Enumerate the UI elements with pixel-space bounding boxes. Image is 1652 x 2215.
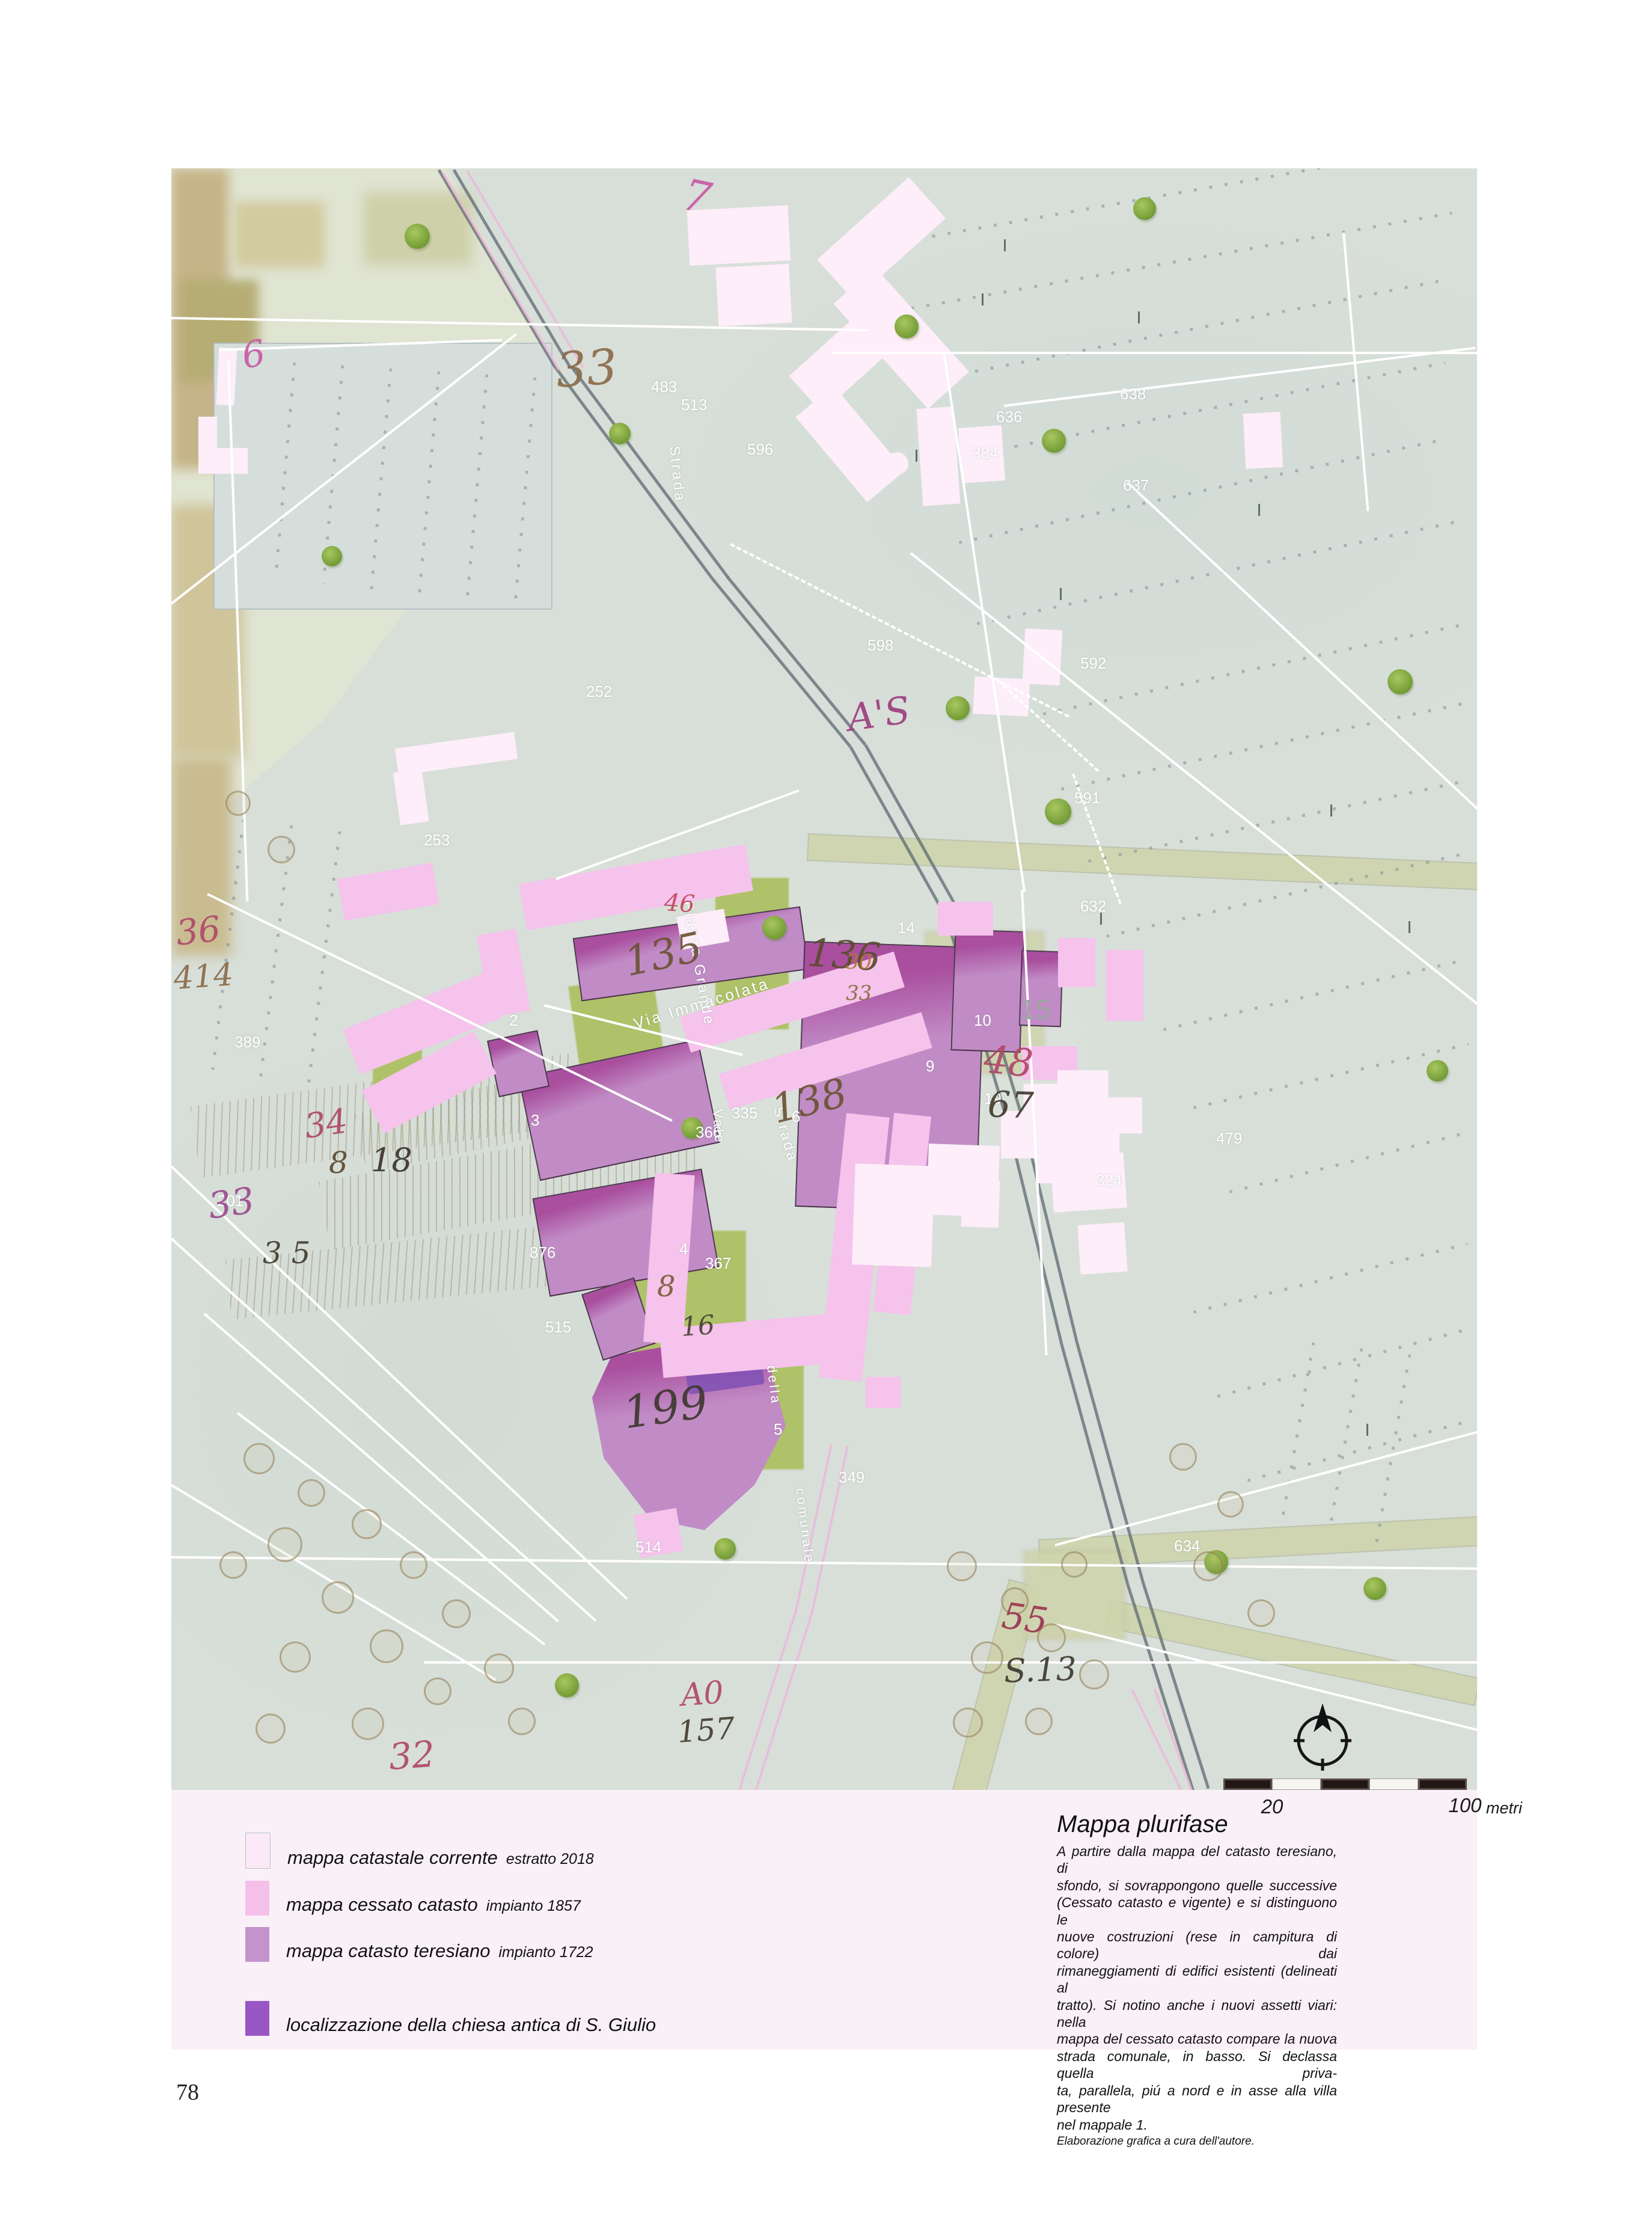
parcel-number-label: 634 (1174, 1537, 1200, 1555)
handwritten-parcel-number: 30 (846, 950, 872, 974)
handwritten-parcel-number: S.13 (1003, 1650, 1077, 1690)
handwritten-parcel-number: 34 (302, 1101, 350, 1146)
sketched-tree-icon (280, 1641, 311, 1673)
field-row-dots (1247, 1420, 1468, 1482)
handwritten-parcel-number: 48 (982, 1037, 1035, 1086)
parcel-number-label: 4 (679, 1240, 688, 1258)
legend-label: mappa cessato catasto (286, 1894, 478, 1916)
legend-swatch-1 (245, 1833, 271, 1869)
cadastral-boundary-line (833, 352, 1477, 354)
sketched-tree-icon (225, 791, 251, 816)
handwritten-parcel-number: 8 (657, 1270, 676, 1304)
legend-item: mappa catasto teresianoimpianto 1722 (245, 1927, 593, 1962)
sketched-tree-icon (370, 1629, 403, 1663)
caption-line: rimaneggiamenti di edifici esistenti (de… (1057, 1962, 1337, 1997)
road-edge-line (1141, 1579, 1210, 1789)
tree-icon (405, 224, 430, 249)
building-current-2018 (886, 452, 908, 475)
legend-item: mappa catastale correnteestratto 2018 (245, 1834, 594, 1869)
parcel-number-label: 598 (867, 636, 893, 655)
legend-sublabel: impianto 1857 (486, 1898, 581, 1915)
parcel-number-label: 513 (681, 396, 707, 414)
sketched-tree-icon (1247, 1599, 1275, 1627)
parchment-patch (213, 343, 552, 610)
small-tree-mark (1258, 504, 1260, 516)
sketched-tree-icon (1061, 1551, 1088, 1578)
handwritten-parcel-number: 157 (676, 1711, 736, 1750)
caption-line: ta, parallela, piú a nord e in asse alla… (1057, 2082, 1337, 2116)
legend-texts: mappa cessato catastoimpianto 1857 (286, 1894, 581, 1916)
sketched-tree-icon (400, 1551, 427, 1579)
parcel-number-label: 514 (635, 1538, 661, 1557)
field-row-dots (1328, 1348, 1363, 1532)
tree-icon (1133, 197, 1156, 220)
parcel-number-label: 349 (839, 1468, 864, 1487)
parcel-number-label: 479 (1216, 1129, 1242, 1148)
handwritten-parcel-number: 18 (371, 1141, 412, 1179)
caption-line: nel mappale 1. (1057, 2116, 1337, 2133)
building-cessato-1857 (1058, 938, 1095, 987)
field-row-dots (1060, 702, 1467, 791)
legend-texts: mappa catasto teresianoimpianto 1722 (286, 1940, 593, 1962)
small-tree-mark (982, 293, 984, 305)
building-teresiano-1722 (487, 1030, 549, 1097)
building-current-2018 (715, 264, 792, 326)
cadastral-boundary-line (424, 1661, 1477, 1664)
handwritten-parcel-number: 33 (846, 981, 872, 1005)
field-row-dots (1163, 958, 1468, 1031)
building-current-2018 (852, 1163, 935, 1267)
sketched-tree-icon (298, 1479, 325, 1507)
caption-body: A partire dalla mappa del catasto teresi… (1057, 1843, 1337, 2133)
sketched-tree-icon (352, 1509, 382, 1539)
cadastral-boundary-line (1342, 233, 1369, 512)
legend-swatch-2 (245, 1881, 269, 1916)
caption-title: Mappa plurifase (1057, 1811, 1337, 1838)
caption-line: A partire dalla mappa del catasto teresi… (1057, 1843, 1337, 1877)
figure-caption: Mappa plurifase A partire dalla mappa de… (1057, 1811, 1337, 2148)
legend-texts: mappa catastale correnteestratto 2018 (287, 1847, 594, 1869)
parcel-number-label-gray: 15 (1020, 993, 1051, 1026)
parcel-number-label: 367 (705, 1254, 731, 1273)
building-teresiano-1722 (950, 929, 1024, 1053)
parcel-number-label: 483 (651, 378, 677, 396)
sketched-tree-icon (508, 1708, 536, 1735)
small-tree-mark (1138, 311, 1140, 323)
compass-north-icon (1280, 1697, 1365, 1781)
road-surface (808, 835, 1477, 889)
sketched-tree-icon (484, 1653, 514, 1683)
parcel-number-label: 636 (996, 408, 1022, 426)
tree-icon (555, 1673, 579, 1697)
cadastral-dashed-line (997, 680, 1100, 773)
tree-icon (1045, 798, 1071, 825)
field-row-dots (917, 168, 1450, 240)
caption-line: (Cessato catasto e vigente) e si disting… (1057, 1894, 1337, 1928)
parcel-number-label: 592 (1080, 654, 1106, 673)
legend-label: localizzazione della chiesa antica di S.… (286, 2014, 656, 2036)
small-tree-mark (916, 450, 917, 462)
parcel-number-label: 335 (732, 1104, 757, 1123)
field-row-dots (1193, 1242, 1467, 1314)
document-page: 2522533892015155143493663673358764563463… (0, 0, 1652, 2215)
sketched-tree-icon (243, 1443, 275, 1474)
road-edge-line (864, 744, 963, 918)
sketched-tree-icon (442, 1599, 471, 1628)
parchment-patch (234, 201, 325, 268)
parcel-number-label: 2 (509, 1011, 518, 1030)
sketched-tree-icon (1193, 1551, 1223, 1581)
parcel-number-label: 9 (926, 1057, 934, 1076)
field-row-dots (1088, 779, 1470, 863)
tree-icon (1387, 669, 1413, 694)
parcel-number-label: 637 (1123, 476, 1149, 495)
handwritten-parcel-number: 8 (329, 1145, 348, 1180)
tree-icon (1042, 429, 1066, 453)
building-current-2018 (395, 732, 518, 775)
parcel-number-label: 596 (747, 440, 773, 459)
parcel-number-label: 253 (424, 831, 450, 850)
scale-bar-segment (1223, 1778, 1272, 1790)
field-row-dots (958, 437, 1447, 544)
building-current-2018 (796, 385, 905, 502)
sketched-tree-icon (971, 1641, 1003, 1674)
tree-icon (714, 1538, 736, 1560)
sketched-tree-icon (1169, 1443, 1197, 1471)
road-edge-line (849, 746, 948, 919)
legend-label: mappa catastale corrente (287, 1847, 498, 1869)
field-row-dots (1375, 1354, 1411, 1544)
cadastral-boundary-line (1004, 347, 1476, 407)
sketched-tree-icon (424, 1677, 451, 1705)
street-name-label: Vale (709, 1109, 727, 1145)
tree-icon (322, 546, 342, 566)
building-cessato-1857 (866, 1377, 901, 1408)
handwritten-parcel-number: 16 (680, 1310, 715, 1343)
parcel-number-label: 591 (1074, 789, 1100, 807)
building-current-2018 (961, 1180, 1000, 1228)
small-tree-mark (1366, 1424, 1368, 1436)
caption-credit: Elaborazione grafica a cura dell'autore. (1057, 2135, 1337, 2148)
legend-sublabel: estratto 2018 (506, 1851, 594, 1868)
scale-unit-label: metri (1486, 1799, 1522, 1818)
scale-bar-segment (1321, 1778, 1369, 1790)
parcel-number-label: 252 (586, 682, 612, 701)
legend-label: mappa catasto teresiano (286, 1940, 491, 1962)
small-tree-mark (1409, 921, 1410, 933)
parcel-number-label: 876 (530, 1243, 555, 1262)
parcel-number-label: 10 (974, 1011, 991, 1030)
cessato-road-line (738, 1609, 798, 1790)
parcel-number-label: 638 (1120, 385, 1146, 403)
parcel-number-label: 5 (774, 1420, 782, 1439)
handwritten-parcel-number: 32 (388, 1733, 436, 1778)
parcel-number-label: 515 (545, 1318, 571, 1337)
small-tree-mark (1060, 588, 1062, 600)
building-cessato-1857 (337, 863, 439, 921)
page-number: 78 (176, 2079, 199, 2106)
legend-item: mappa cessato catastoimpianto 1857 (245, 1881, 581, 1916)
caption-line: mappa del cessato catasto compare la nuo… (1057, 2030, 1337, 2047)
sketched-tree-icon (255, 1714, 286, 1744)
sketched-tree-icon (268, 1527, 302, 1562)
field-row-dots (1229, 1130, 1472, 1193)
handwritten-parcel-number: A0 (680, 1674, 725, 1714)
field-row-dots (259, 825, 293, 1082)
sketched-tree-icon (1025, 1708, 1053, 1735)
sketched-tree-icon (953, 1708, 983, 1738)
building-current-2018 (1077, 1222, 1128, 1275)
tree-icon (895, 314, 919, 339)
tree-icon (1427, 1060, 1448, 1082)
sketched-tree-icon (947, 1551, 977, 1581)
sketched-tree-icon (1217, 1491, 1244, 1518)
sketched-tree-icon (322, 1581, 354, 1614)
cessato-road-line (754, 1610, 814, 1790)
tree-icon (609, 423, 631, 444)
handwritten-parcel-number: 414 (173, 957, 234, 997)
handwritten-parcel-number: 33 (206, 1180, 257, 1228)
field-row-dots (1217, 1328, 1467, 1398)
handwritten-parcel-number: 36 (174, 908, 222, 953)
field-row-dots (306, 831, 341, 1094)
parcel-number-label: 632 (1080, 897, 1106, 916)
caption-line: sfondo, si sovrappongono quelle successi… (1057, 1877, 1337, 1894)
building-cessato-1857 (938, 902, 993, 936)
tree-icon (762, 916, 786, 940)
legend-texts: localizzazione della chiesa antica di S.… (286, 2014, 656, 2036)
scale-bar-segment (1369, 1778, 1418, 1790)
scale-bar-segment (1272, 1778, 1321, 1790)
sketched-tree-icon (268, 836, 295, 863)
road-edge-line (711, 578, 852, 748)
small-tree-mark (1330, 804, 1332, 816)
tree-icon (946, 696, 970, 720)
legend-sublabel: impianto 1722 (499, 1944, 593, 1961)
map-scale-bar (1223, 1778, 1467, 1790)
field-row-dots (1280, 1342, 1315, 1520)
building-current-2018 (216, 348, 237, 405)
handwritten-parcel-number: A'S (845, 688, 913, 740)
building-cessato-1857 (1106, 950, 1143, 1021)
building-current-2018 (1243, 412, 1283, 469)
handwritten-parcel-number: 46 (663, 889, 696, 918)
legend-swatch-3 (245, 1927, 269, 1962)
scale-bar-segment (1418, 1778, 1467, 1790)
handwritten-parcel-number: 55 (999, 1595, 1050, 1643)
handwritten-parcel-number: 33 (554, 339, 619, 399)
building-current-2018 (393, 769, 429, 826)
legend-swatch-4 (245, 2001, 269, 2036)
sketched-tree-icon (219, 1551, 247, 1579)
parcel-number-label: 384 (972, 444, 998, 462)
tree-icon (1363, 1577, 1386, 1600)
caption-line: tratto). Si notino anche i nuovi assetti… (1057, 1997, 1337, 2031)
scale-label-100: 100 (1448, 1794, 1481, 1817)
caption-line: nuove costruzioni (rese in campitura di … (1057, 1928, 1337, 1962)
handwritten-parcel-number: 67 (987, 1083, 1035, 1127)
parcel-number-label: 324 (1096, 1171, 1122, 1190)
caption-line: strada comunale, in basso. Si declassa q… (1057, 2048, 1337, 2082)
parcel-number-label: 389 (234, 1033, 260, 1052)
parcel-number-label: 3 (531, 1111, 539, 1130)
historic-cadastral-map: 2522533892015155143493663673358764563463… (171, 168, 1477, 1790)
field-row-dots (976, 518, 1465, 625)
sketched-tree-icon (1079, 1659, 1109, 1690)
parcel-number-label: 14 (898, 919, 915, 937)
sketched-tree-icon (352, 1708, 384, 1740)
small-tree-mark (1004, 239, 1006, 251)
legend-item: localizzazione della chiesa antica di S.… (245, 2001, 656, 2036)
handwritten-parcel-number: 3 5 (263, 1236, 311, 1270)
